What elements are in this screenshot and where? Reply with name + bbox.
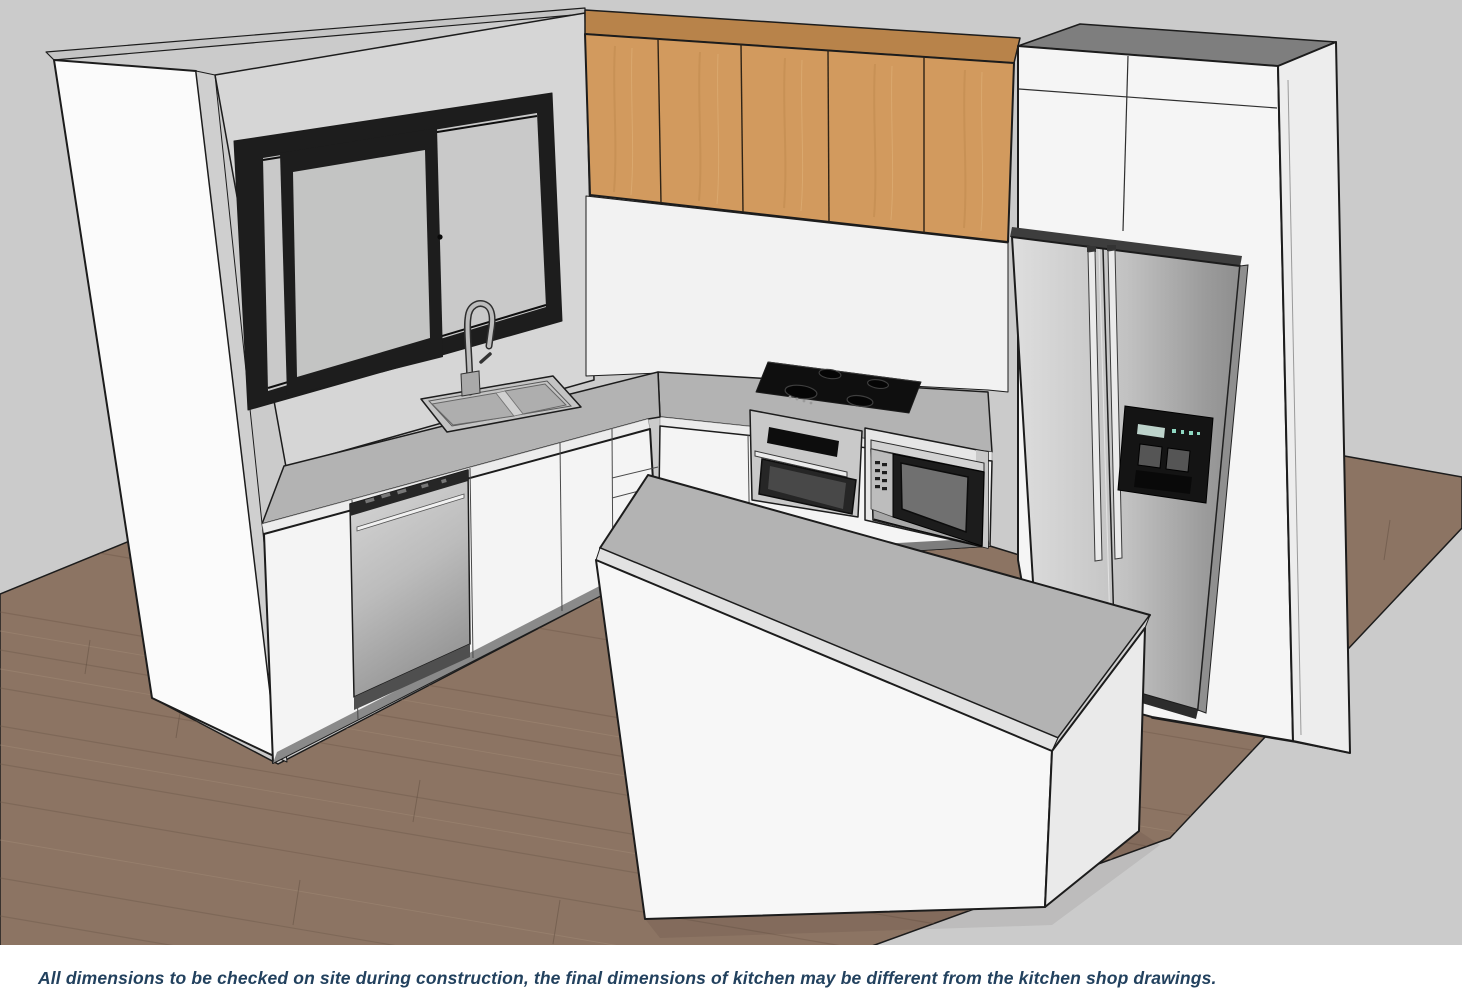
microwave-control-panel [871,449,893,517]
footer-note: All dimensions to be checked on site dur… [0,945,1462,996]
kitchen-shop-drawing-page: All dimensions to be checked on site dur… [0,0,1462,996]
disclaimer-text: All dimensions to be checked on site dur… [37,968,1216,988]
kitchen-3d-render: All dimensions to be checked on site dur… [0,0,1462,996]
window-handle [437,234,442,239]
faucet-base [461,371,480,396]
fridge-dispenser [1118,406,1213,503]
